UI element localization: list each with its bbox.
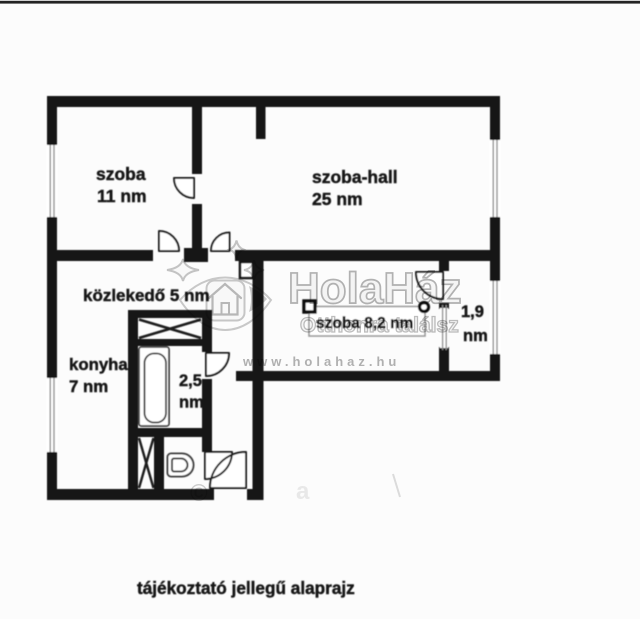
svg-text:11 nm: 11 nm — [97, 186, 147, 206]
svg-text:Otthonra találsz: Otthonra találsz — [300, 314, 459, 337]
svg-text:©: © — [190, 480, 208, 507]
svg-text:2,5: 2,5 — [179, 372, 202, 390]
svg-text:konyha: konyha — [69, 355, 128, 374]
svg-text:szoba-hall: szoba-hall — [312, 167, 398, 187]
svg-text:nm: nm — [179, 394, 204, 412]
svg-text:25 nm: 25 nm — [312, 189, 363, 209]
svg-text:www.holahaz.hu: www.holahaz.hu — [242, 354, 400, 369]
svg-text:HolaHáz: HolaHáz — [288, 264, 462, 313]
svg-text:szoba: szoba — [96, 164, 146, 184]
svg-text:a: a — [296, 478, 310, 505]
svg-text:7 nm: 7 nm — [69, 377, 108, 396]
svg-text:tájékoztató jellegű alaprajz: tájékoztató jellegű alaprajz — [137, 578, 355, 598]
svg-text:nm: nm — [463, 327, 488, 345]
svg-text:1,9: 1,9 — [461, 303, 484, 321]
